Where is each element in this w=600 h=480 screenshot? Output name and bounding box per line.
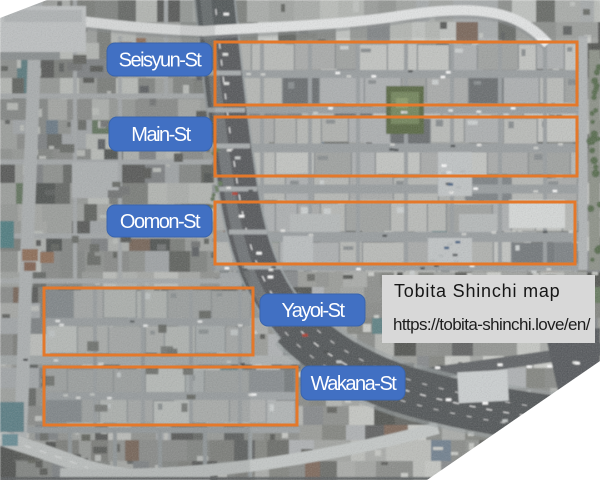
svg-text:Seisyun-St: Seisyun-St: [119, 50, 203, 72]
svg-text:Oomon-St: Oomon-St: [120, 211, 201, 233]
svg-text:Main-St: Main-St: [131, 124, 191, 146]
svg-text:Yayoi-St: Yayoi-St: [281, 300, 345, 322]
svg-text:https://tobita-shinchi.love/en: https://tobita-shinchi.love/en/: [393, 315, 591, 334]
svg-text:Tobita Shinchi map: Tobita Shinchi map: [394, 281, 561, 301]
svg-text:Wakana-St: Wakana-St: [311, 373, 398, 395]
